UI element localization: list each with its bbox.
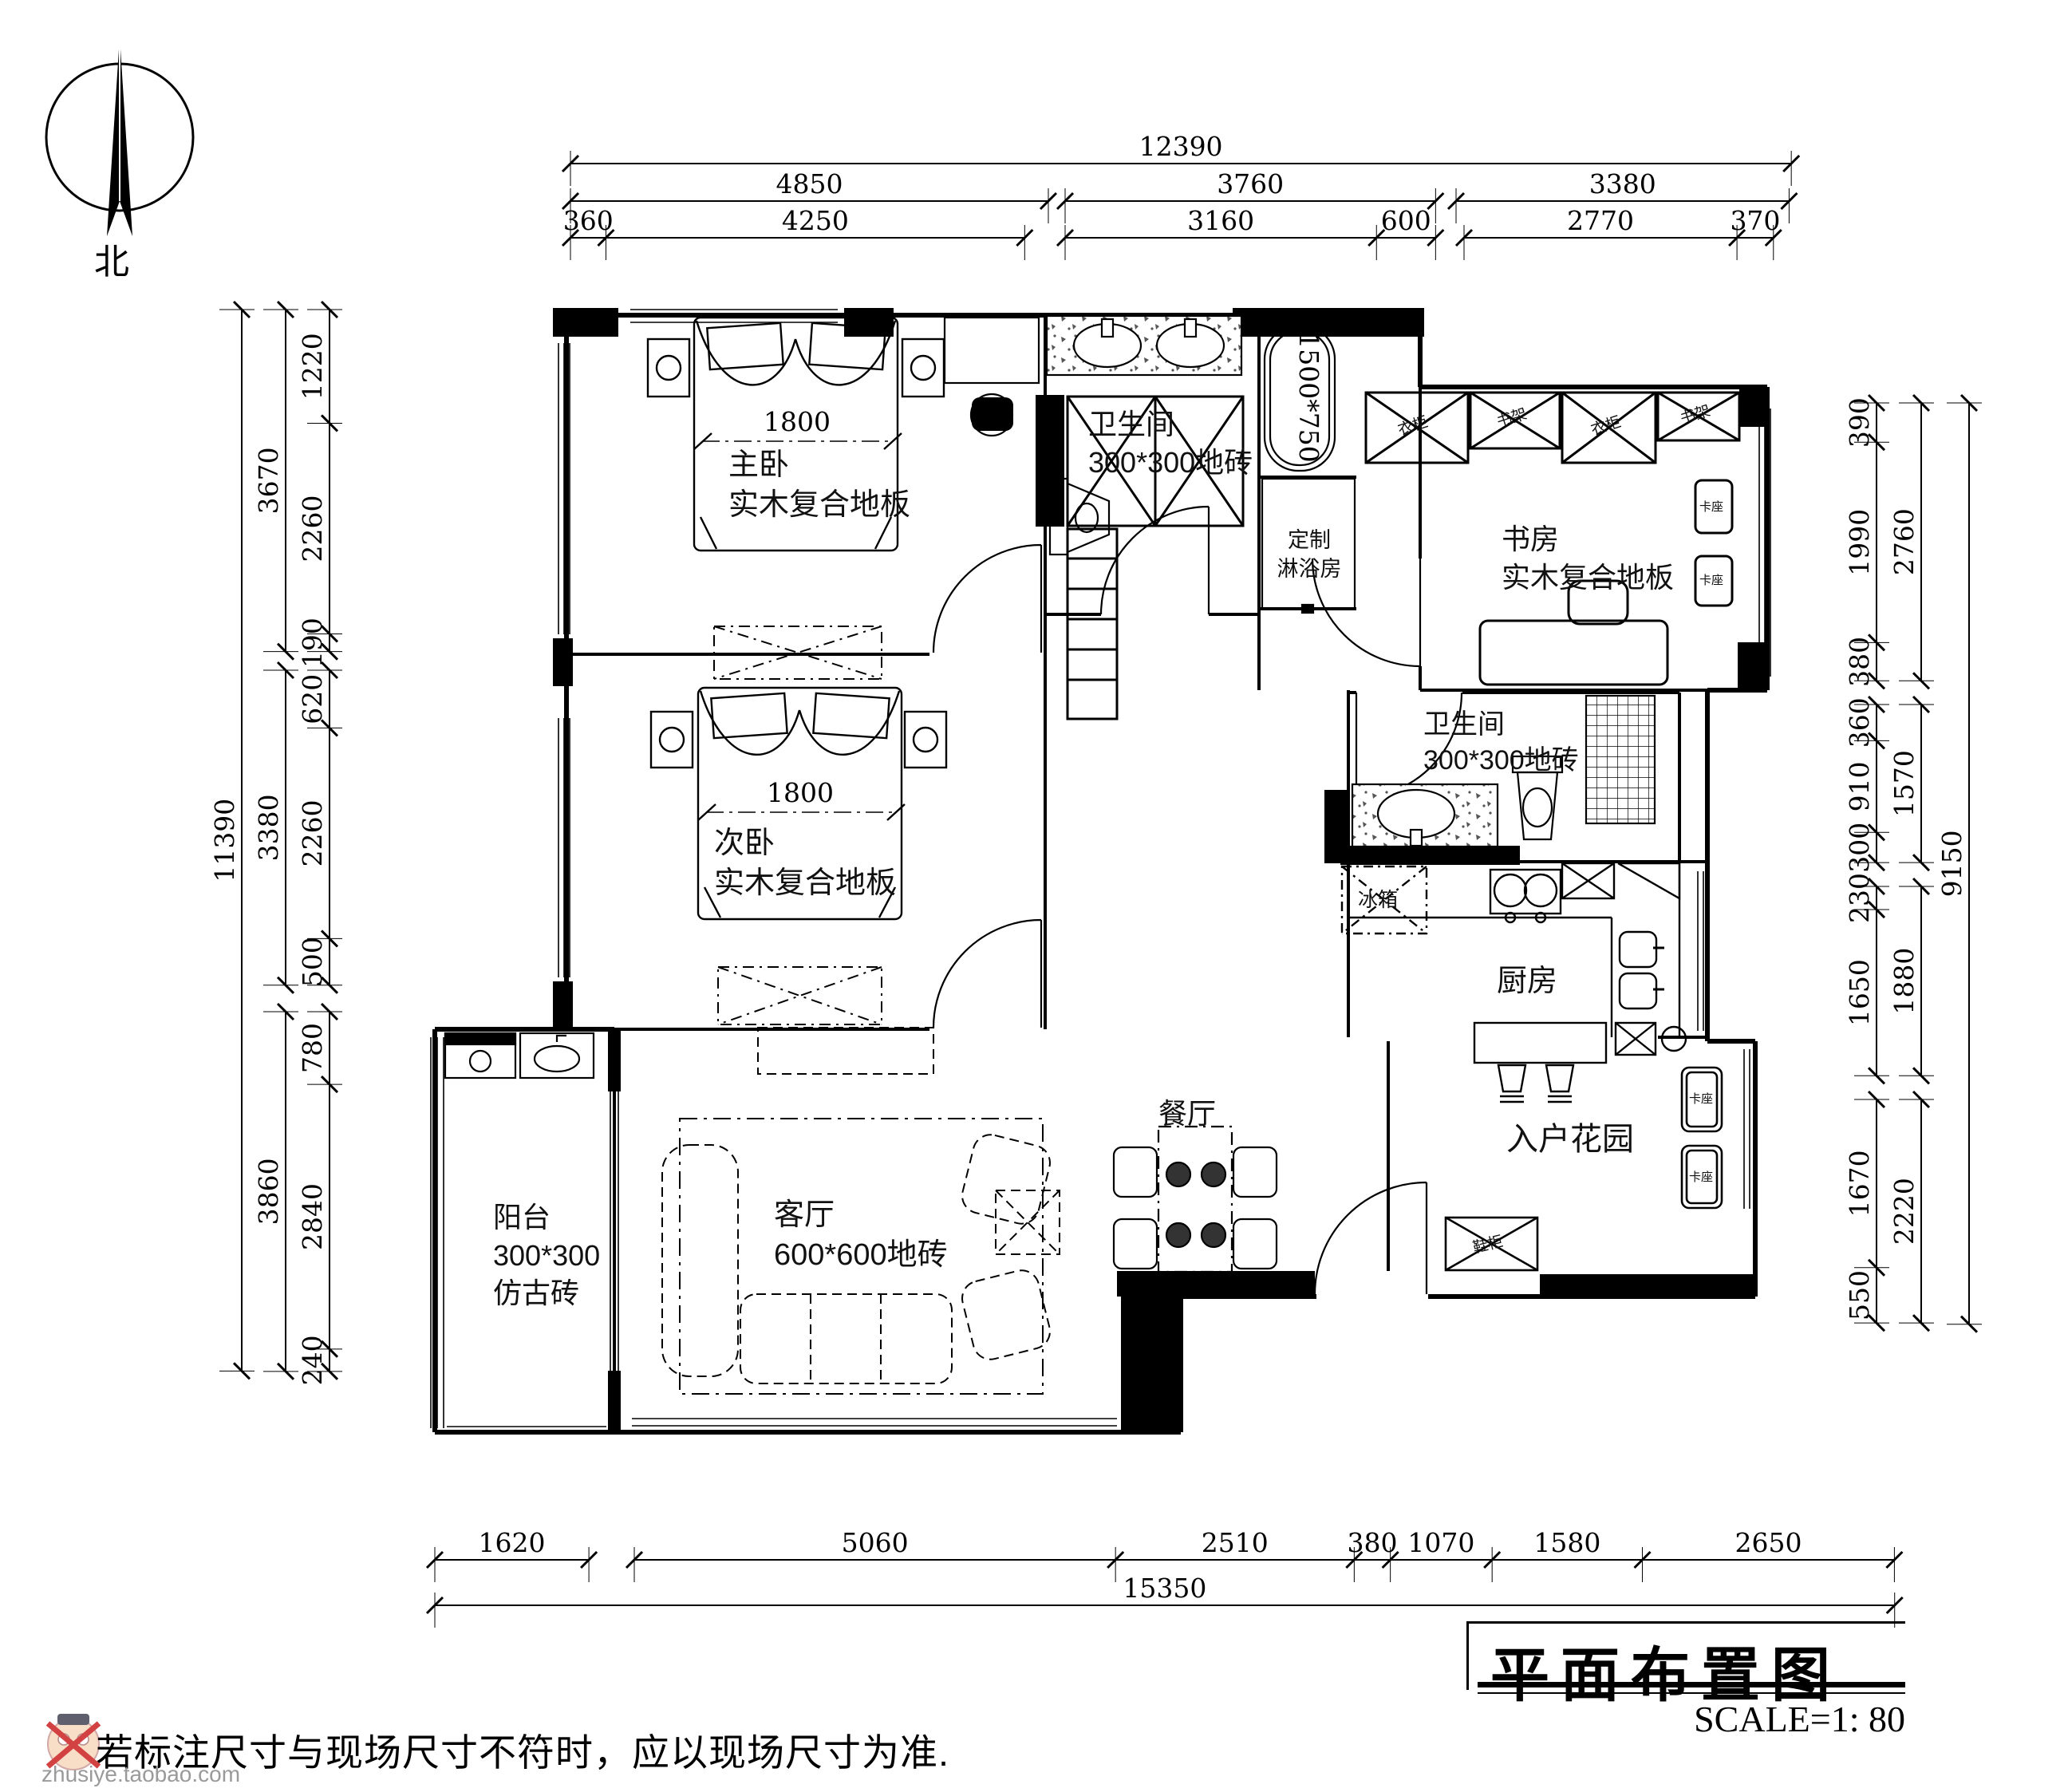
dimension-value: 370 bbox=[1730, 205, 1780, 236]
bathroom-mid-name: 卫生间 bbox=[1423, 707, 1579, 743]
sheet-scale: SCALE=1: 80 bbox=[1596, 1698, 1905, 1740]
dimension-value: 230 bbox=[1844, 873, 1875, 923]
master-bed-width-label: 1800 bbox=[764, 406, 831, 437]
master-bedroom-floor: 实木复合地板 bbox=[728, 485, 910, 525]
dimension-value: 300 bbox=[1844, 823, 1875, 873]
dimension-value: 11390 bbox=[209, 799, 240, 882]
bathroom-mid-floor: 300*300地砖 bbox=[1423, 743, 1579, 779]
dimension-value: 2260 bbox=[297, 799, 328, 866]
dimension-value: 1990 bbox=[1844, 509, 1875, 576]
study-name: 书房 bbox=[1502, 520, 1674, 559]
bathroom-top-floor: 300*300地砖 bbox=[1088, 444, 1253, 482]
dimension-value: 15350 bbox=[1123, 1573, 1206, 1604]
fridge-label: 冰箱 bbox=[1358, 887, 1398, 914]
dimension-value: 1580 bbox=[1533, 1527, 1600, 1558]
balcony-floor: 300*300 bbox=[493, 1237, 600, 1275]
balcony-floor2: 仿古砖 bbox=[493, 1274, 600, 1312]
seat-label-4: 卡座 bbox=[1689, 1170, 1713, 1186]
master-bed-dim: 1800 bbox=[694, 406, 902, 449]
dimension-value: 380 bbox=[1844, 637, 1875, 687]
dimension-value: 360 bbox=[1844, 697, 1875, 748]
compass-icon bbox=[46, 37, 193, 236]
dimension-value: 910 bbox=[1844, 761, 1875, 811]
room-label-study: 书房 实木复合地板 bbox=[1502, 520, 1674, 596]
second-bedroom-name: 次卧 bbox=[714, 823, 896, 863]
shower-line2: 淋浴房 bbox=[1270, 555, 1348, 584]
dining-name: 餐厅 bbox=[1158, 1095, 1216, 1133]
dimension-value: 1880 bbox=[1888, 948, 1920, 1015]
dimension-value: 390 bbox=[1844, 397, 1875, 448]
dimension-value: 1570 bbox=[1888, 750, 1920, 817]
second-bed-width-label: 1800 bbox=[767, 777, 834, 808]
dimension-value: 2650 bbox=[1735, 1527, 1802, 1558]
dimension-value: 550 bbox=[1844, 1270, 1875, 1320]
room-label-balcony: 阳台 300*300 仿古砖 bbox=[493, 1198, 600, 1312]
room-label-master-bedroom: 主卧 实木复合地板 bbox=[728, 445, 910, 525]
dimension-value: 380 bbox=[1347, 1527, 1397, 1558]
title-block-top-rule bbox=[1466, 1621, 1905, 1624]
floor-plan-sheet: 1800 1500*750 bbox=[0, 0, 2068, 1792]
dimension-value: 3760 bbox=[1217, 168, 1284, 199]
living-floor: 600*600地砖 bbox=[774, 1235, 948, 1275]
seat-label-3: 卡座 bbox=[1689, 1091, 1713, 1107]
watermark-url: zhusiye.taobao.com bbox=[41, 1762, 240, 1787]
dimension-value: 1650 bbox=[1844, 959, 1875, 1026]
second-bed-dim: 1800 bbox=[698, 777, 905, 820]
title-underline-thin bbox=[1478, 1692, 1905, 1694]
room-label-bathroom-mid: 卫生间 300*300地砖 bbox=[1423, 707, 1579, 779]
dimension-value: 3160 bbox=[1187, 205, 1254, 236]
dimension-value: 4250 bbox=[782, 205, 849, 236]
dimension-value: 190 bbox=[297, 618, 328, 668]
seat-label-1: 卡座 bbox=[1699, 499, 1723, 515]
kitchen-name: 厨房 bbox=[1497, 961, 1557, 1001]
dimension-value: 12390 bbox=[1139, 131, 1223, 162]
dimension-value: 4850 bbox=[775, 168, 843, 199]
balcony-fixtures bbox=[445, 1033, 594, 1078]
dimension-value: 3860 bbox=[253, 1158, 284, 1225]
dimension-value: 3380 bbox=[253, 794, 284, 861]
room-label-dining: 餐厅 bbox=[1158, 1095, 1216, 1133]
dimension-value: 240 bbox=[297, 1335, 328, 1385]
title-underline-thick bbox=[1478, 1682, 1905, 1687]
floor-plan-drawing: 1800 1500*750 bbox=[0, 0, 2068, 1792]
dining-set bbox=[1114, 1127, 1277, 1272]
seat-label-2: 卡座 bbox=[1699, 573, 1723, 589]
living-name: 客厅 bbox=[774, 1195, 948, 1235]
room-label-living: 客厅 600*600地砖 bbox=[774, 1195, 948, 1275]
dimension-value: 9150 bbox=[1936, 830, 1967, 897]
title-block-left-rule bbox=[1466, 1621, 1469, 1690]
dimension-value: 2510 bbox=[1202, 1527, 1269, 1558]
dimension-value: 360 bbox=[563, 205, 614, 236]
dimension-value: 1070 bbox=[1407, 1527, 1474, 1558]
dimension-value: 3380 bbox=[1589, 168, 1656, 199]
dimension-value: 2220 bbox=[1888, 1178, 1920, 1245]
balcony-name: 阳台 bbox=[493, 1198, 600, 1237]
dimension-value: 1670 bbox=[1844, 1150, 1875, 1217]
dimension-value: 500 bbox=[297, 937, 328, 987]
room-label-bathroom-top: 卫生间 300*300地砖 bbox=[1088, 405, 1253, 481]
bathroom-top-name: 卫生间 bbox=[1088, 405, 1253, 444]
room-label-shower: 定制 淋浴房 bbox=[1270, 527, 1348, 583]
dimension-value: 2260 bbox=[297, 495, 328, 562]
room-label-second-bedroom: 次卧 实木复合地板 bbox=[714, 823, 896, 903]
dimension-value: 1620 bbox=[479, 1527, 546, 1558]
exterior-walls bbox=[435, 315, 1767, 1432]
dimension-value: 2760 bbox=[1888, 508, 1920, 575]
dressing-table bbox=[945, 318, 1039, 436]
room-label-kitchen: 厨房 bbox=[1497, 961, 1557, 1001]
dimension-value: 1220 bbox=[297, 333, 328, 400]
dimension-value: 780 bbox=[297, 1023, 328, 1073]
dimension-value: 620 bbox=[297, 674, 328, 724]
study-floor: 实木复合地板 bbox=[1502, 559, 1674, 597]
compass-north-label: 北 bbox=[94, 233, 129, 284]
dimension-value: 3670 bbox=[253, 447, 284, 514]
bathtub-size-label: 1500*750 bbox=[1293, 332, 1324, 462]
master-bedroom-name: 主卧 bbox=[728, 445, 910, 485]
room-label-entry-garden: 入户花园 bbox=[1506, 1119, 1634, 1161]
shower-line1: 定制 bbox=[1270, 527, 1348, 555]
dimension-value: 2840 bbox=[297, 1183, 328, 1250]
entry-garden-name: 入户花园 bbox=[1506, 1119, 1634, 1161]
second-bedroom-floor: 实木复合地板 bbox=[714, 863, 896, 903]
dimension-value: 600 bbox=[1381, 205, 1431, 236]
dimension-value: 5060 bbox=[842, 1527, 909, 1558]
second-wardrobe bbox=[718, 967, 882, 1024]
dimension-value: 2770 bbox=[1567, 205, 1634, 236]
